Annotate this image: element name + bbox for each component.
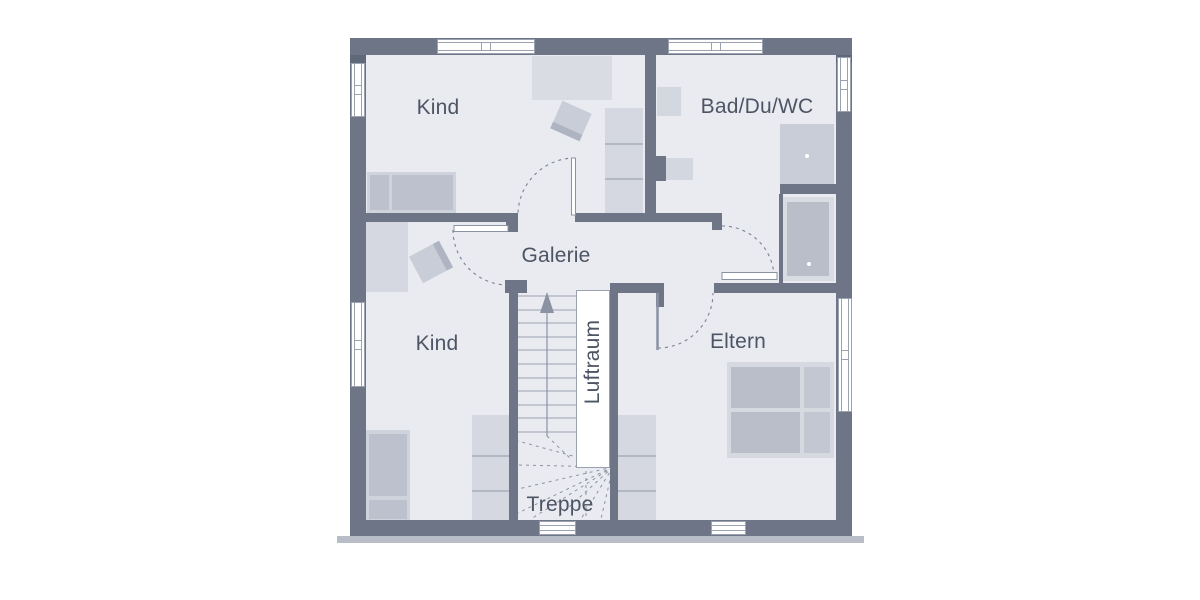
shower bbox=[780, 124, 834, 184]
window-top-kind bbox=[437, 39, 535, 54]
wall-luftraum-eltern bbox=[610, 293, 618, 536]
room-label-bath: Bad/Du/WC bbox=[701, 95, 814, 119]
wall-galerie-bottom-right bbox=[714, 283, 852, 293]
room-label-galerie: Galerie bbox=[521, 244, 590, 268]
bathtub-basin bbox=[787, 202, 829, 276]
double-bed-eltern bbox=[727, 362, 834, 458]
duct-block bbox=[656, 156, 666, 181]
bed-pillow bbox=[370, 175, 389, 210]
bathtub bbox=[782, 197, 834, 281]
wall-galerie-top-left bbox=[366, 213, 518, 222]
bed-pillow bbox=[804, 412, 830, 453]
bed-mattress bbox=[392, 175, 453, 210]
window-bottom-treppe bbox=[539, 521, 576, 535]
wall-door-jamb bbox=[656, 283, 664, 307]
wardrobe-divider bbox=[618, 490, 656, 492]
sink bbox=[657, 87, 681, 116]
bed-kind-top bbox=[367, 172, 456, 213]
wardrobe-kind-top bbox=[605, 108, 643, 213]
window-left-kind-top bbox=[351, 63, 365, 117]
wall-door-jamb bbox=[712, 222, 722, 230]
wall-kind-bath bbox=[645, 55, 656, 222]
wardrobe-divider bbox=[618, 455, 656, 457]
floorplan-canvas: Kind Bad/Du/WC Galerie Kind Eltern Luftr… bbox=[0, 0, 1200, 600]
bed-mattress bbox=[731, 412, 800, 453]
wall-tub-side bbox=[779, 194, 783, 283]
room-label-luftraum: Luftraum bbox=[581, 320, 605, 404]
room-label-kind-top: Kind bbox=[417, 96, 460, 120]
wall-shower-stub bbox=[780, 184, 836, 194]
wall-door-jamb bbox=[506, 222, 518, 232]
room-label-kind-bottom: Kind bbox=[416, 332, 459, 356]
plinth-shadow bbox=[337, 536, 864, 543]
wardrobe-divider bbox=[605, 143, 643, 145]
wall-galerie-bottom-left bbox=[610, 283, 656, 293]
window-right-bath bbox=[837, 57, 851, 112]
room-label-eltern: Eltern bbox=[710, 330, 766, 354]
wardrobe-eltern bbox=[618, 415, 656, 523]
wardrobe-divider bbox=[605, 178, 643, 180]
desk-kind-top bbox=[532, 56, 612, 100]
wall-galerie-top-right bbox=[575, 213, 722, 222]
wall-outer-top bbox=[350, 38, 852, 55]
room-label-treppe: Treppe bbox=[527, 493, 594, 517]
wall-stair-cap bbox=[505, 280, 527, 293]
wall-outer-bottom bbox=[350, 520, 852, 536]
bathtub-drain bbox=[807, 262, 811, 266]
bed-kind-bottom bbox=[366, 430, 410, 523]
bed-mattress bbox=[369, 434, 407, 496]
shower-drain bbox=[805, 154, 809, 158]
wall-stair-left bbox=[509, 293, 518, 536]
toilet bbox=[666, 158, 693, 180]
dresser-kind-bottom bbox=[366, 222, 408, 292]
window-right-eltern bbox=[838, 298, 852, 412]
bed-mattress bbox=[731, 367, 800, 408]
window-left-kind-bottom bbox=[351, 302, 365, 387]
wall-corner-block bbox=[350, 55, 366, 63]
bed-pillow bbox=[369, 500, 407, 519]
window-bottom-eltern bbox=[711, 521, 746, 535]
bed-pillow bbox=[804, 367, 830, 408]
window-top-bath bbox=[668, 39, 763, 54]
